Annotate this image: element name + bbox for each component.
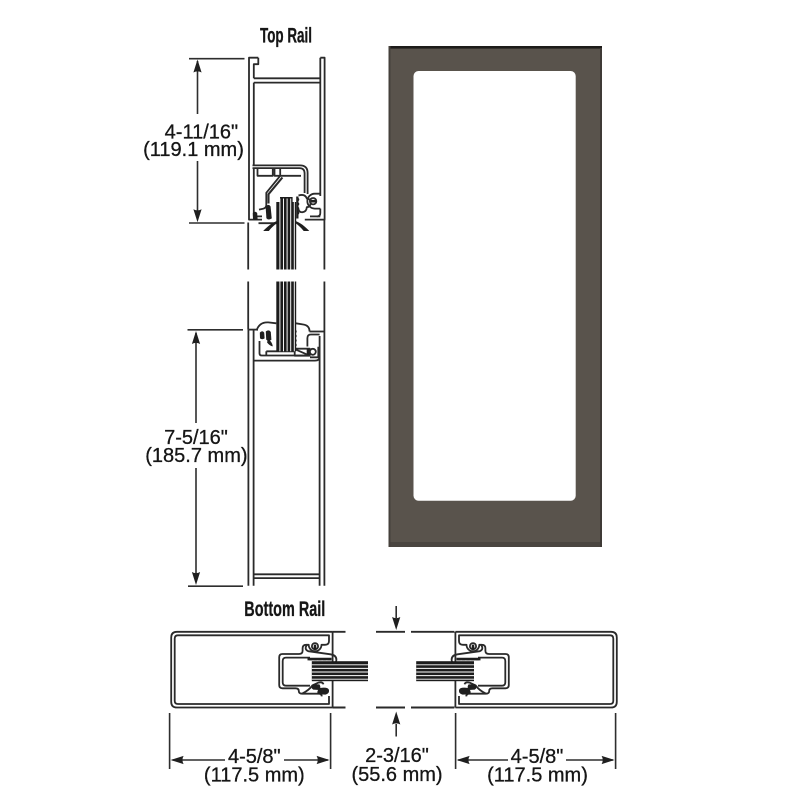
- svg-text:(117.5 mm): (117.5 mm): [487, 765, 588, 787]
- svg-text:(119.1 mm): (119.1 mm): [143, 139, 244, 161]
- svg-text:Bottom Rail: Bottom Rail: [244, 598, 325, 621]
- svg-text:Top Rail: Top Rail: [260, 25, 312, 48]
- svg-text:(185.7 mm): (185.7 mm): [145, 445, 247, 467]
- svg-text:(55.6 mm): (55.6 mm): [351, 764, 442, 786]
- svg-text:(117.5 mm): (117.5 mm): [204, 765, 305, 787]
